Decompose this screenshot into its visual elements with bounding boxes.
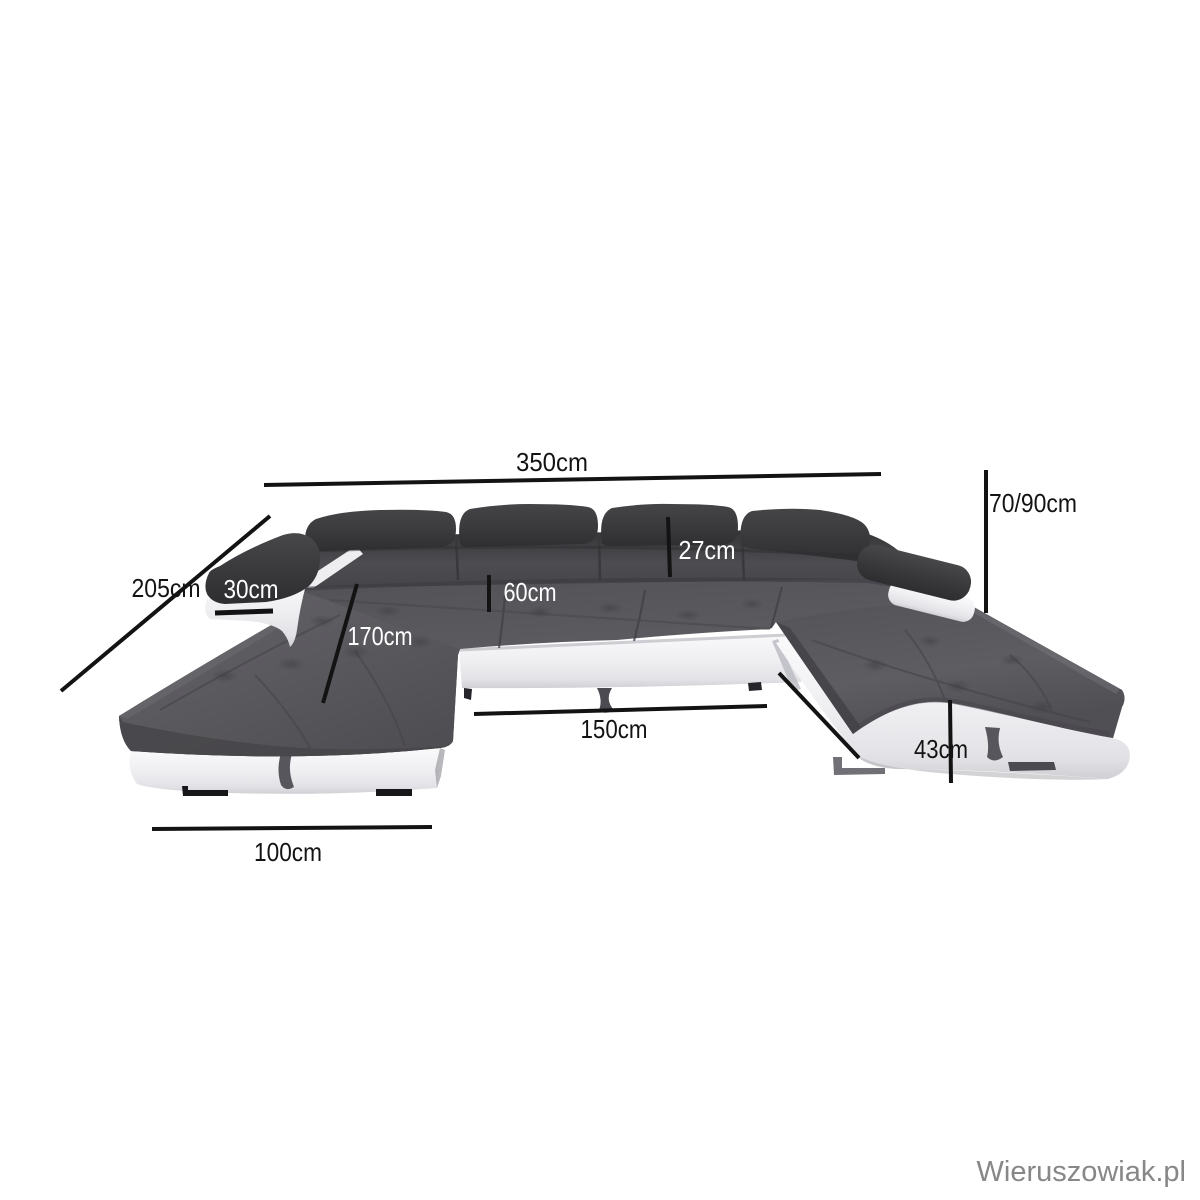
svg-text:350cm: 350cm <box>516 447 588 477</box>
svg-text:150cm: 150cm <box>581 714 648 744</box>
svg-text:60cm: 60cm <box>504 577 557 607</box>
svg-text:Wieruszowiak.pl: Wieruszowiak.pl <box>977 1156 1187 1188</box>
svg-text:170cm: 170cm <box>348 621 413 651</box>
svg-text:27cm: 27cm <box>679 535 736 565</box>
svg-text:30cm: 30cm <box>224 574 279 604</box>
svg-text:70/90cm: 70/90cm <box>989 488 1077 518</box>
svg-text:43cm: 43cm <box>914 734 968 764</box>
svg-text:100cm: 100cm <box>254 837 322 867</box>
svg-text:205cm: 205cm <box>132 573 201 603</box>
